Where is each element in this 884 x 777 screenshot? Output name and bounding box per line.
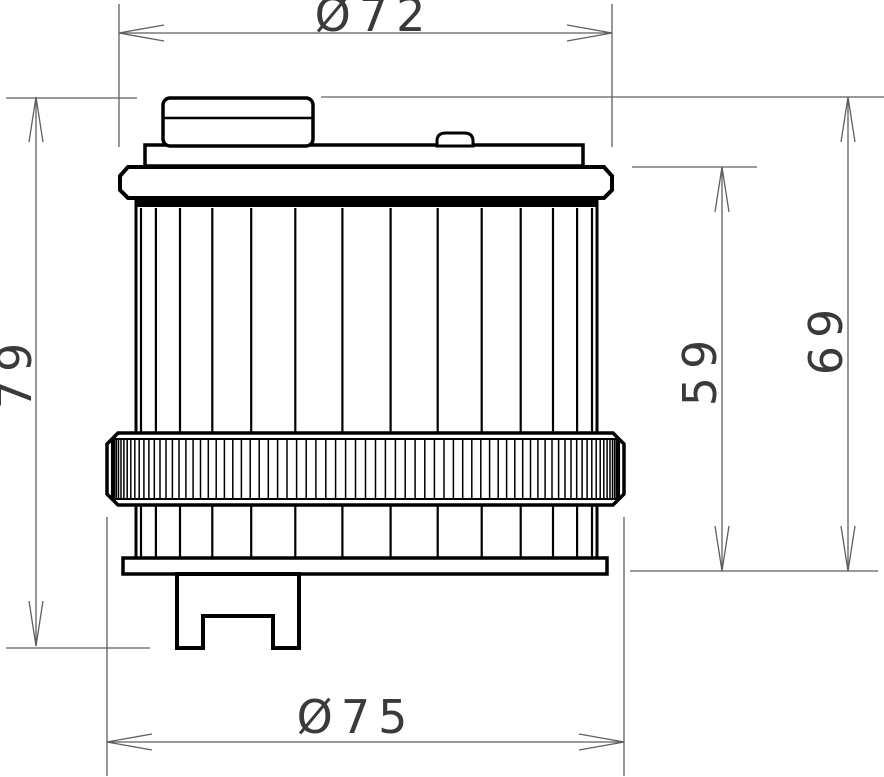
- top-diameter-label: Ø72: [315, 0, 434, 42]
- filter-flange: [120, 167, 612, 198]
- technical-drawing: Ø72 Ø75 79 59 69: [0, 0, 884, 777]
- filter-part-group: [107, 98, 624, 648]
- mounting-stub: [177, 574, 299, 648]
- inner-height-label: 59: [673, 332, 727, 407]
- cap-nub-right: [437, 133, 473, 146]
- overall-height-label: 79: [0, 335, 42, 410]
- outer-height-label: 69: [799, 301, 853, 376]
- bottom-diameter-label: Ø75: [297, 690, 416, 744]
- top-cap: [163, 98, 313, 146]
- drawing-canvas: Ø72 Ø75 79 59 69: [0, 0, 884, 777]
- bottom-plate: [123, 558, 607, 574]
- gasket-plate: [145, 145, 583, 166]
